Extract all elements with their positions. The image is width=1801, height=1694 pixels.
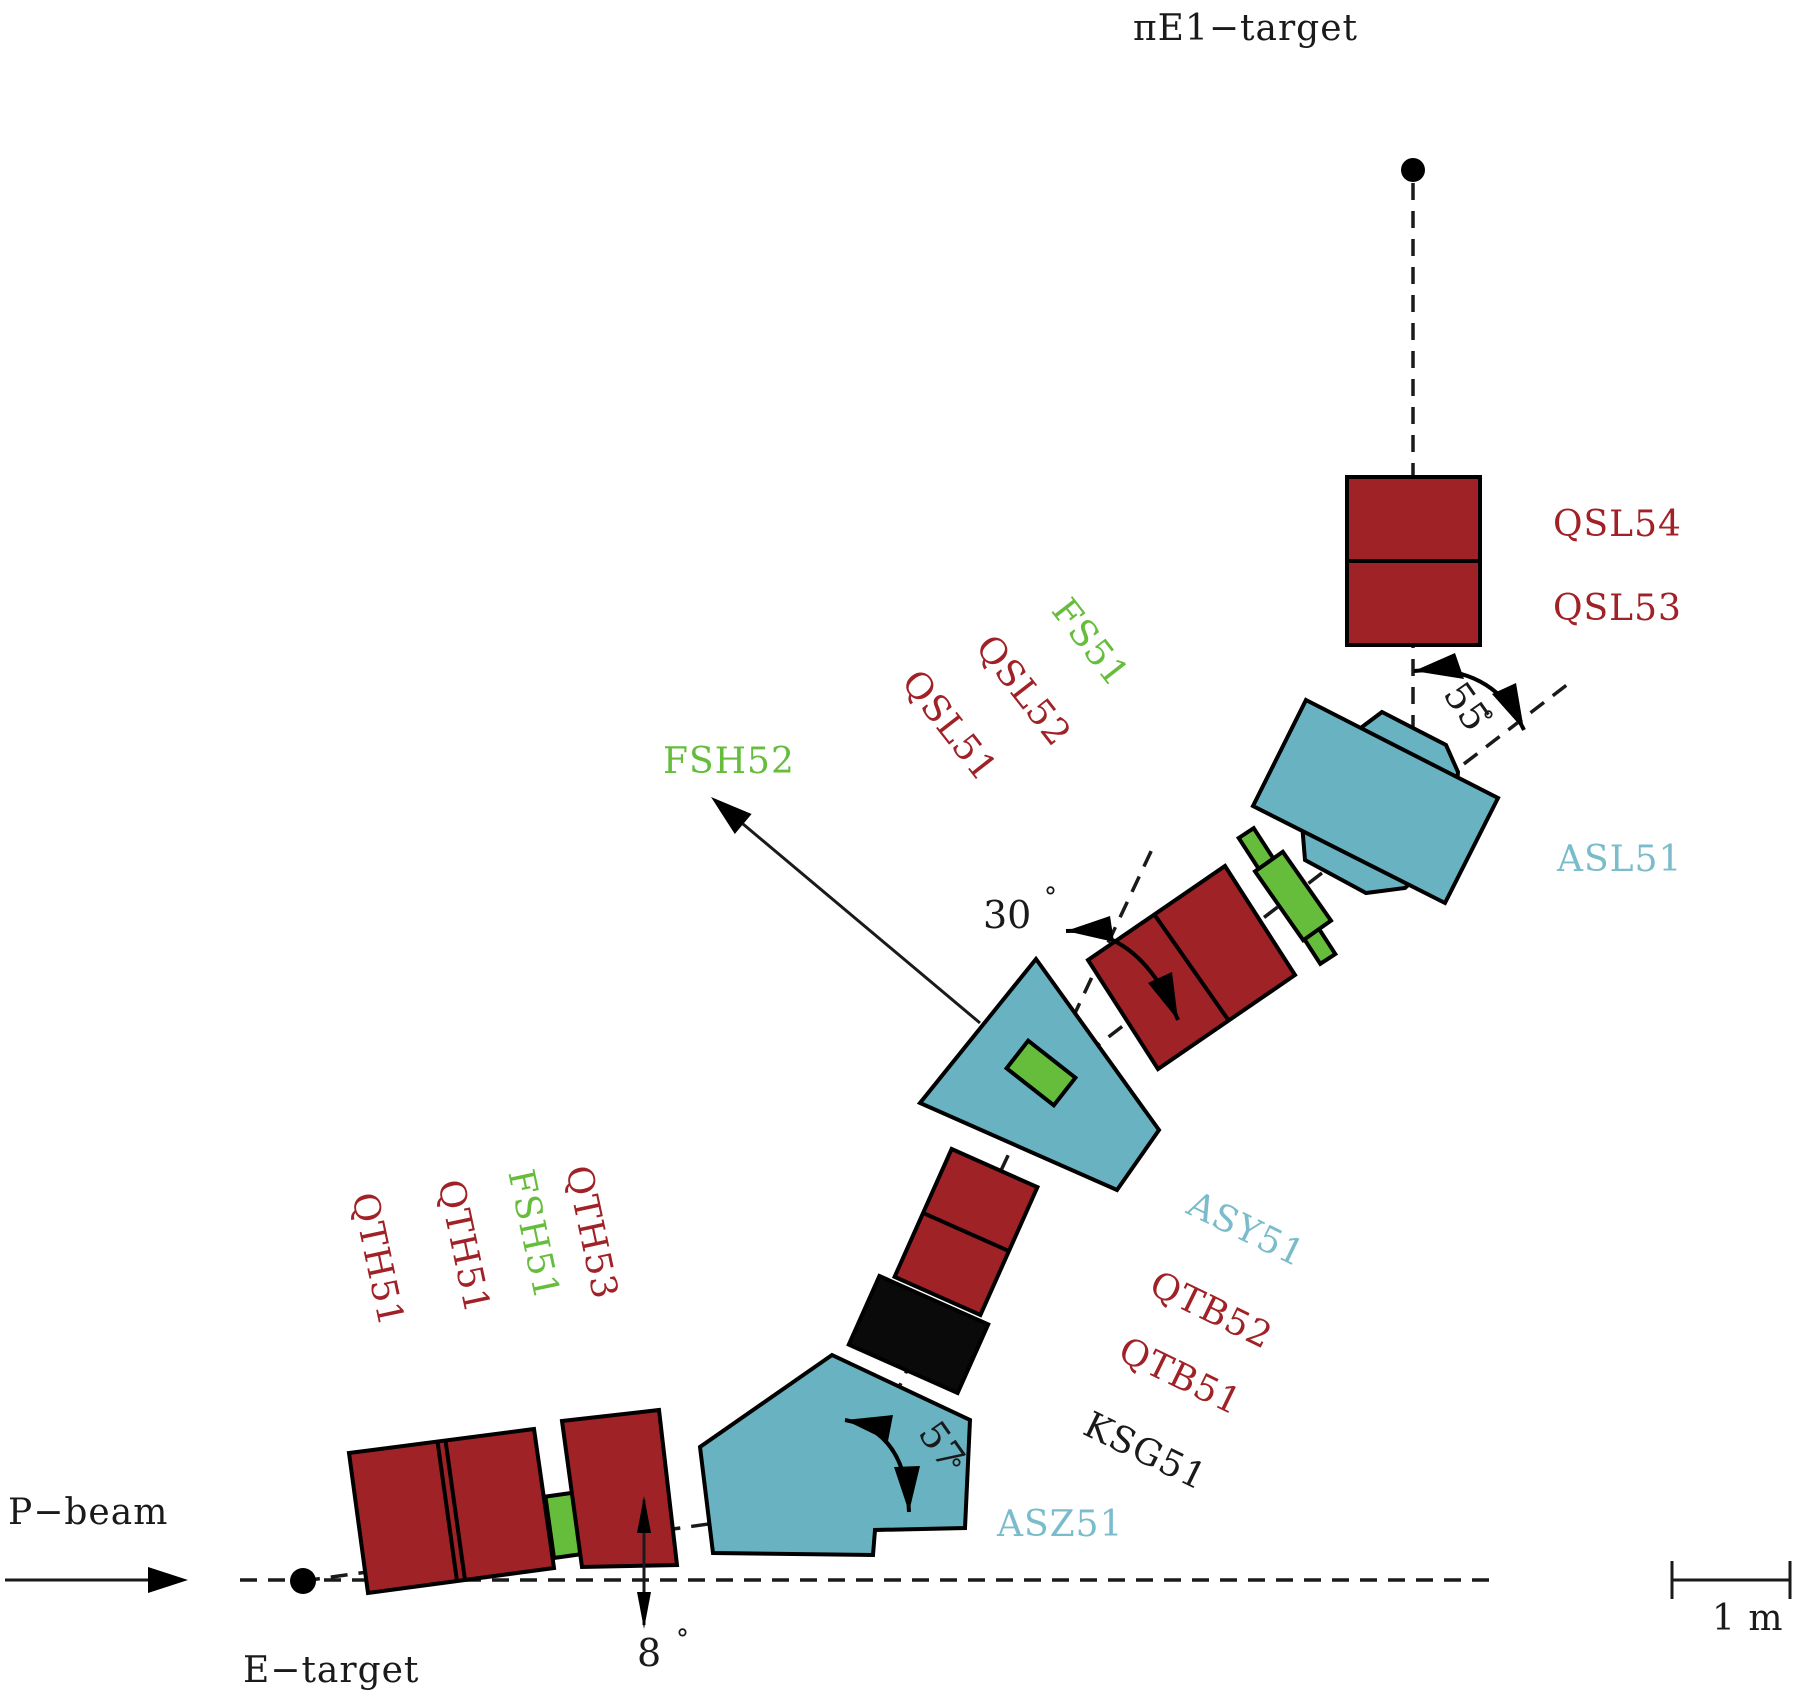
label-qth51-first: QTH51 xyxy=(343,1189,411,1330)
degree-symbol-30: ° xyxy=(1044,883,1057,913)
label-fsh52: FSH52 xyxy=(663,741,795,782)
degree-symbol-8: ° xyxy=(676,1625,689,1655)
degree-symbol-57: ° xyxy=(950,1455,963,1485)
label-qsl54: QSL54 xyxy=(1553,504,1682,545)
angle-value-8: 8 xyxy=(637,1631,661,1675)
label-pi-e1-target: πE1−target xyxy=(1133,8,1358,49)
label-asz51: ASZ51 xyxy=(996,1504,1123,1545)
magnet-qth51-doublet xyxy=(349,1429,554,1593)
label-ksg51: KSG51 xyxy=(1077,1404,1213,1498)
label-asl51: ASL51 xyxy=(1556,839,1682,880)
label-qth51-second: QTH51 xyxy=(429,1176,497,1317)
e-target-dot xyxy=(290,1568,316,1594)
magnet-qth53 xyxy=(562,1410,677,1567)
label-qth53: QTH53 xyxy=(557,1162,625,1303)
asl51-arc-arrowhead-left-icon xyxy=(1414,653,1464,679)
label-fs51: FS51 xyxy=(1043,591,1137,695)
angle-value-30: 30 xyxy=(983,893,1031,937)
fsh52-arrowhead-icon xyxy=(711,797,752,834)
beamline-figure: πE1−target P−beam E−target 1 m QSL54 QSL… xyxy=(0,0,1801,1694)
label-p-beam: P−beam xyxy=(8,1492,168,1533)
degree-symbol-55: ° xyxy=(1482,707,1495,737)
fsh52-pointer-line xyxy=(743,824,980,1023)
magnet-qsl54 xyxy=(1347,477,1480,561)
asl51-arc-arrowhead-right-icon xyxy=(1492,683,1524,730)
p-beam-arrowhead-icon xyxy=(148,1567,188,1593)
magnet-qsl53 xyxy=(1347,561,1480,645)
etarget-angle-arrowhead-down-icon xyxy=(637,1592,651,1629)
beamline-diagram: πE1−target P−beam E−target 1 m QSL54 QSL… xyxy=(0,0,1801,1694)
label-qsl52: QSL52 xyxy=(967,628,1079,755)
label-fsh51: FSH51 xyxy=(499,1166,567,1303)
label-qsl51: QSL51 xyxy=(893,663,1005,790)
asy51-arc-arrowhead-left-icon xyxy=(1066,916,1114,942)
label-qtb51: QTB51 xyxy=(1112,1330,1248,1424)
label-qtb52: QTB52 xyxy=(1143,1264,1279,1358)
label-e-target: E−target xyxy=(243,1650,419,1691)
pi-e1-target-dot xyxy=(1401,158,1425,182)
label-asy51: ASY51 xyxy=(1180,1183,1311,1275)
label-scale-1m: 1 m xyxy=(1712,1598,1783,1639)
label-qsl53: QSL53 xyxy=(1553,588,1682,629)
